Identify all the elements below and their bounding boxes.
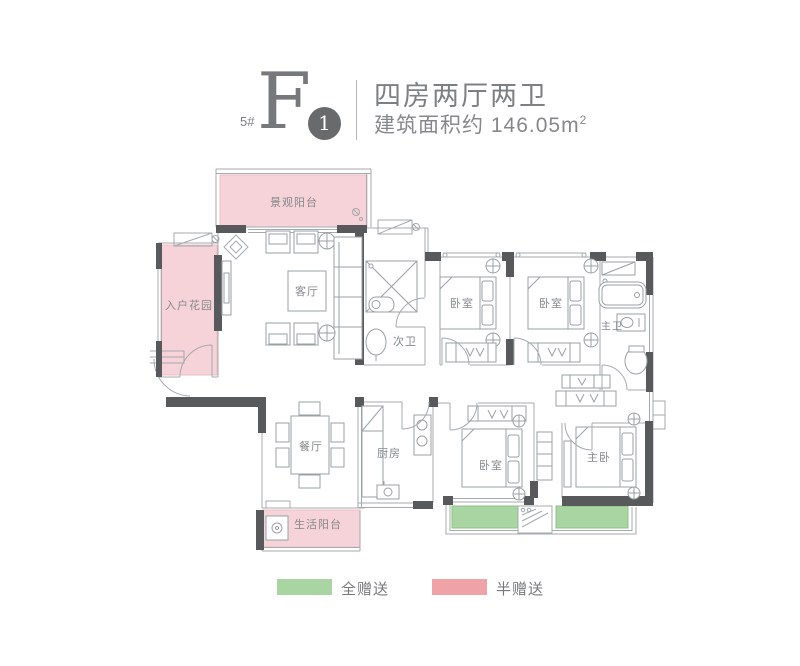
washbasin-2 bbox=[366, 329, 386, 361]
unit-letter: F bbox=[257, 62, 311, 142]
bed-3 bbox=[462, 406, 526, 500]
legend-swatch-full-gift bbox=[277, 579, 332, 595]
header-divider bbox=[356, 80, 357, 140]
floorplan-drawing bbox=[150, 165, 680, 565]
unit-number-badge: 1 bbox=[308, 107, 341, 140]
room-label-dining-room: 餐厅 bbox=[299, 438, 323, 454]
bathtub bbox=[599, 282, 646, 308]
legend-swatch-half-gift bbox=[432, 579, 487, 595]
floorplan: 景观阳台 入户花园 客厅 次卫 卧室 卧室 主卫 餐厅 厨房 卧室 主卧 生活阳… bbox=[150, 165, 680, 565]
room-label-living-room: 客厅 bbox=[295, 283, 319, 299]
room-label-master-bath: 主卫 bbox=[601, 318, 623, 333]
room-label-bedroom-2: 卧室 bbox=[539, 295, 563, 311]
half-gift-areas bbox=[161, 175, 367, 547]
room-label-kitchen: 厨房 bbox=[377, 445, 401, 461]
layout-title: 四房两厅两卫 bbox=[374, 74, 548, 113]
room-label-life-balcony: 生活阳台 bbox=[294, 516, 342, 532]
room-label-bedroom-1: 卧室 bbox=[450, 295, 474, 311]
room-label-view-balcony: 景观阳台 bbox=[270, 194, 318, 210]
area-superscript: 2 bbox=[580, 113, 588, 127]
area-text: 建筑面积约 146.05m2 bbox=[374, 109, 587, 139]
toilet-1 bbox=[625, 346, 647, 374]
washing-machine bbox=[266, 516, 288, 540]
tv-cabinet bbox=[222, 261, 231, 315]
legend-label-full-gift: 全赠送 bbox=[341, 578, 389, 599]
legend-label-half-gift: 半赠送 bbox=[496, 578, 544, 599]
room-label-entry-garden: 入户花园 bbox=[165, 297, 213, 313]
room-label-master-bedroom: 主卧 bbox=[587, 449, 611, 465]
block-number: 5# bbox=[240, 114, 254, 129]
floorplan-page: { "header": { "block": "5#", "unit": "F"… bbox=[0, 0, 800, 666]
room-label-second-bath: 次卫 bbox=[393, 333, 417, 349]
toilet-2 bbox=[369, 297, 394, 312]
furniture bbox=[222, 231, 647, 540]
area-value: 建筑面积约 146.05m bbox=[374, 114, 580, 137]
room-label-bedroom-3: 卧室 bbox=[479, 457, 503, 473]
